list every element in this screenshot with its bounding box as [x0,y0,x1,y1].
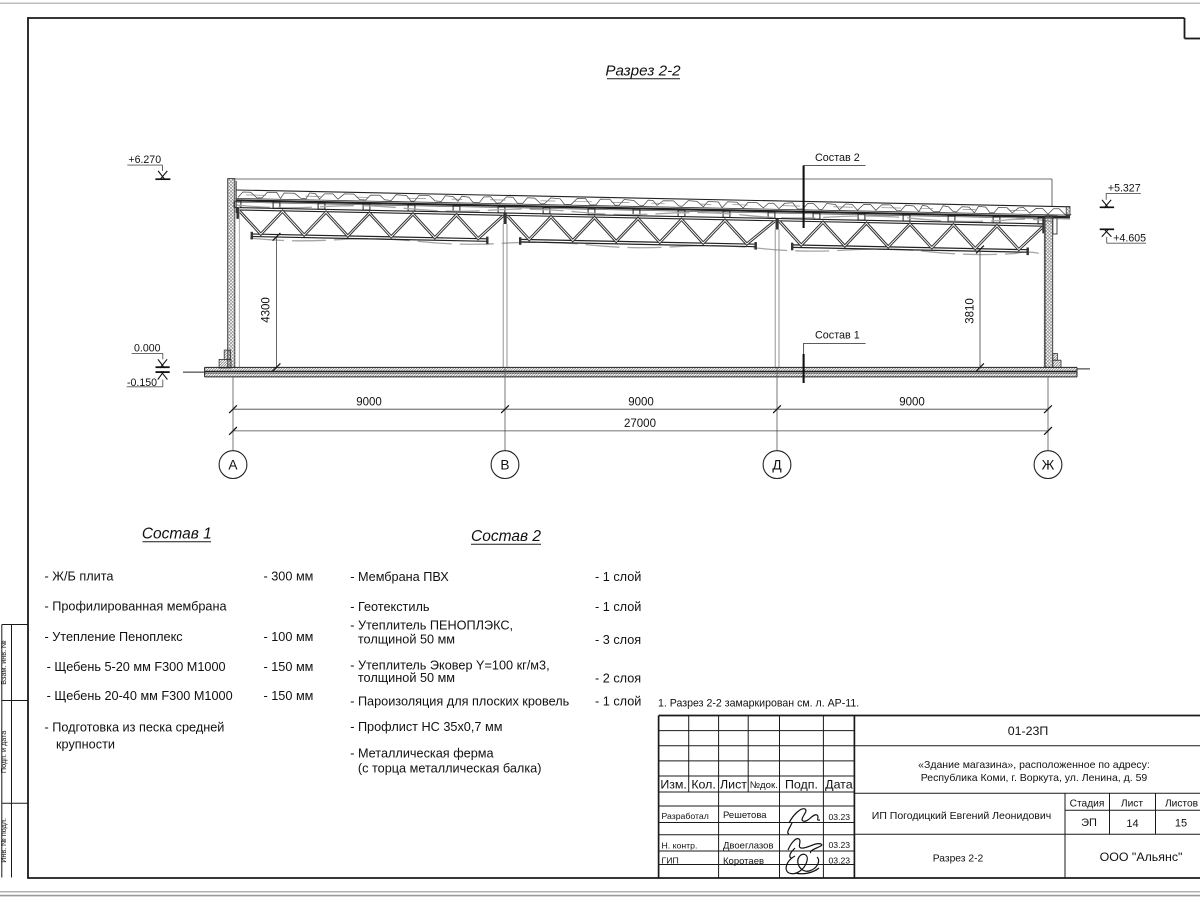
svg-text:ЭП: ЭП [1081,817,1097,829]
svg-text:Республика Коми, г. Воркута, у: Республика Коми, г. Воркута, ул. Ленина,… [921,772,1148,784]
svg-text:- 1 слой: - 1 слой [595,570,641,584]
svg-text:27000: 27000 [624,418,656,430]
svg-text:- Профилированная мембрана: - Профилированная мембрана [45,600,228,614]
svg-text:Коротаев: Коротаев [723,856,764,867]
svg-text:В: В [500,457,509,472]
svg-text:толщиной 50 мм: толщиной 50 мм [358,671,455,685]
svg-text:Лист: Лист [1121,798,1143,809]
svg-text:- Пароизоляция для плоских кро: - Пароизоляция для плоских кровель [350,694,569,708]
svg-text:Н. контр.: Н. контр. [662,841,698,851]
svg-text:Подп.: Подп. [785,778,818,792]
svg-text:+4.605: +4.605 [1113,233,1146,245]
svg-text:4300: 4300 [261,297,273,323]
svg-text:Дата: Дата [825,778,853,792]
svg-text:1. Разрез 2-2 замаркирован см.: 1. Разрез 2-2 замаркирован см. л. АР-11. [658,698,859,710]
svg-text:крупности: крупности [56,737,115,751]
svg-text:- 100 мм: - 100 мм [264,630,314,644]
svg-text:- Утепление Пеноплекс: - Утепление Пеноплекс [45,630,184,644]
svg-text:- Ж/Б плита: - Ж/Б плита [45,569,115,583]
svg-text:(с торца металлическая балка): (с торца металлическая балка) [358,762,542,776]
svg-text:Д: Д [772,457,782,472]
svg-text:-0.150: -0.150 [127,377,157,389]
svg-text:- 2 слоя: - 2 слоя [595,671,641,685]
svg-text:- Щебень 20-40 мм F300 М1000: - Щебень 20-40 мм F300 М1000 [47,689,233,703]
svg-text:+6.270: +6.270 [128,154,161,166]
svg-text:- 3 слоя: - 3 слоя [595,633,641,647]
svg-text:- Геотекстиль: - Геотекстиль [350,600,430,614]
svg-text:3810: 3810 [965,298,977,324]
svg-text:- 1 слой: - 1 слой [595,600,641,614]
svg-text:0.000: 0.000 [134,343,161,355]
svg-text:Состав 1: Состав 1 [815,330,860,342]
svg-text:15: 15 [1175,818,1187,830]
svg-text:«Здание магазина», расположенн: «Здание магазина», расположенное по адре… [918,759,1150,771]
svg-text:- 150 мм: - 150 мм [264,689,314,703]
svg-text:- Утеплитель ПЕНОПЛЭКС,: - Утеплитель ПЕНОПЛЭКС, [350,618,513,632]
svg-text:03.23: 03.23 [829,855,851,865]
svg-text:9000: 9000 [356,397,382,409]
svg-text:- Профлист НС 35х0,7 мм: - Профлист НС 35х0,7 мм [350,720,502,734]
svg-text:Решетова: Решетова [723,810,767,821]
svg-text:Двоеглазов: Двоеглазов [723,841,774,852]
svg-text:толщиной 50 мм: толщиной 50 мм [358,633,455,647]
svg-text:ИП Погодицкий Евгений Леонидов: ИП Погодицкий Евгений Леонидович [872,810,1051,822]
svg-text:- Металлическая ферма: - Металлическая ферма [350,747,494,761]
svg-text:Состав 1: Состав 1 [142,526,212,543]
svg-text:Стадия: Стадия [1070,798,1105,809]
svg-text:9000: 9000 [899,397,925,409]
svg-text:Взам. инв. №: Взам. инв. № [0,640,8,685]
svg-text:ООО "Альянс": ООО "Альянс" [1100,850,1183,864]
svg-text:- 1 слой: - 1 слой [595,694,641,708]
svg-text:Разработал: Разработал [662,811,709,821]
svg-text:Ж: Ж [1042,457,1055,472]
svg-text:Состав 2: Состав 2 [471,528,541,545]
svg-text:- 300 мм: - 300 мм [264,569,314,583]
svg-text:- Мембрана ПВХ: - Мембрана ПВХ [350,570,449,584]
svg-text:А: А [228,457,238,472]
svg-text:Состав 2: Состав 2 [815,152,860,164]
svg-text:Подп. и дата: Подп. и дата [0,731,8,773]
svg-text:03.23: 03.23 [829,840,851,850]
svg-text:Листов: Листов [1165,798,1198,809]
svg-text:- Подготовка из песка средней: - Подготовка из песка средней [45,720,225,734]
svg-text:Разрез 2-2: Разрез 2-2 [933,854,984,865]
svg-text:- 150 мм: - 150 мм [264,660,314,674]
svg-text:Разрез 2-2: Разрез 2-2 [605,63,681,80]
svg-text:- Щебень 5-20 мм F300 М1000: - Щебень 5-20 мм F300 М1000 [47,660,226,674]
svg-text:№док.: №док. [750,780,778,791]
svg-text:03.23: 03.23 [829,812,851,822]
svg-text:Изм.: Изм. [660,778,687,792]
svg-text:Инв. № подл.: Инв. № подл. [0,818,8,863]
svg-text:14: 14 [1126,818,1138,830]
svg-text:Лист: Лист [720,778,747,792]
svg-text:Кол.: Кол. [691,778,716,792]
svg-text:+5.327: +5.327 [1108,183,1141,195]
svg-text:01-23П: 01-23П [1008,724,1049,738]
svg-text:ГИП: ГИП [662,855,679,865]
svg-text:9000: 9000 [628,397,654,409]
